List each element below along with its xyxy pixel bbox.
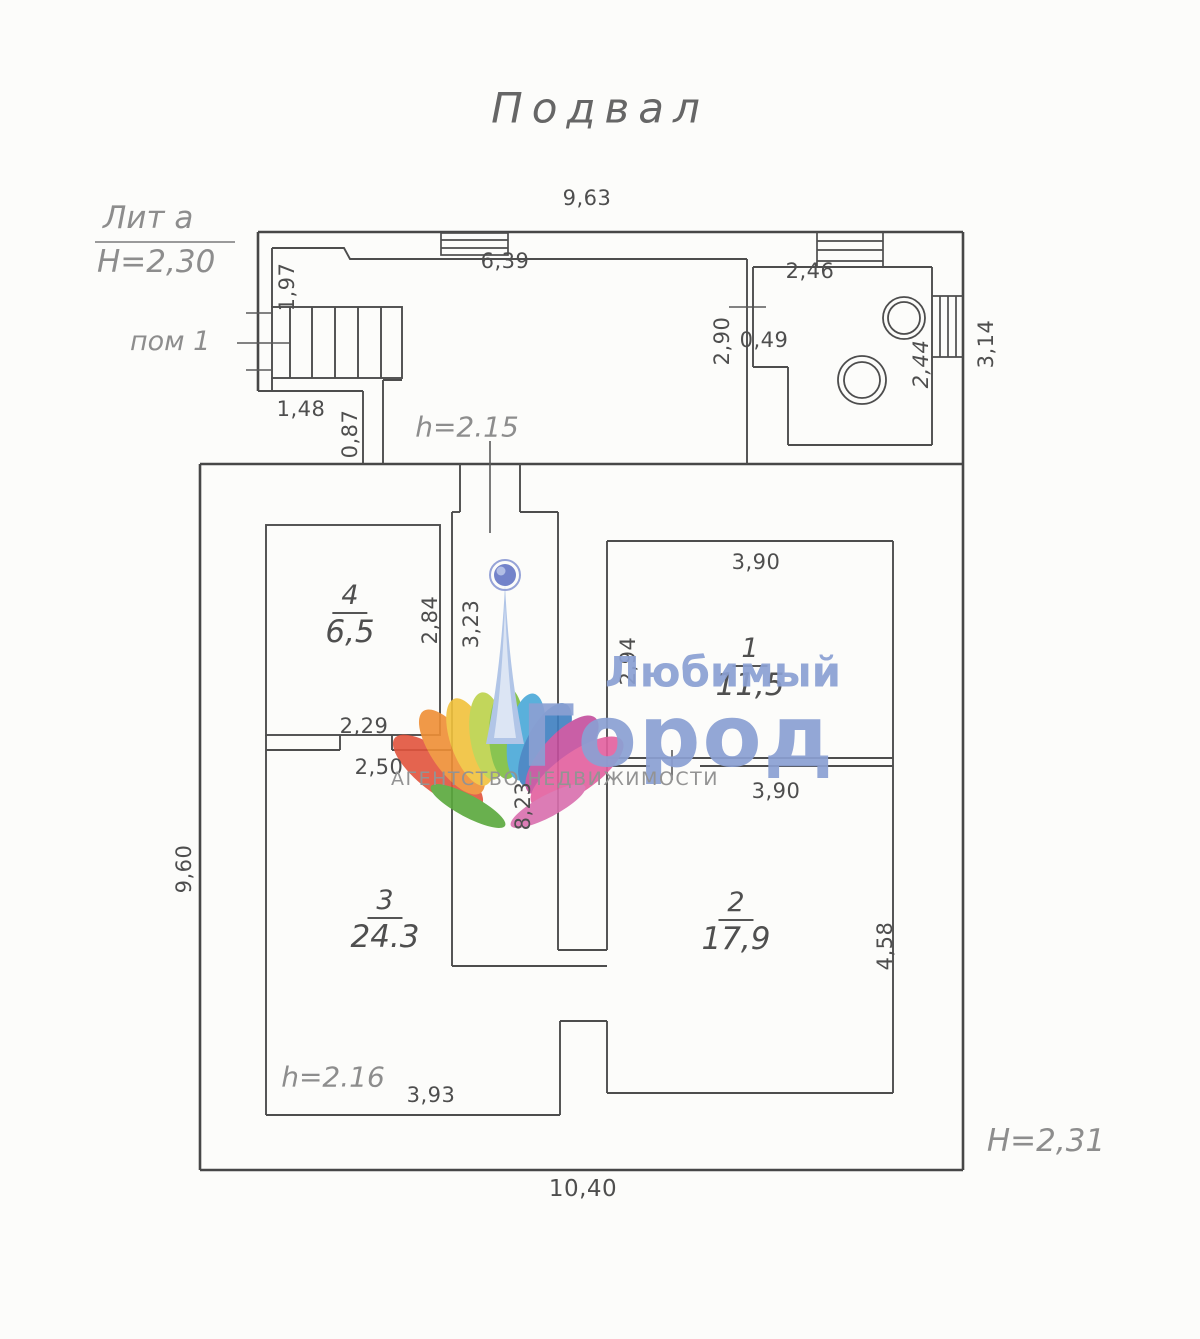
watermark-subtitle: АГЕНТСТВО НЕДВИЖИМОСТИ [391,768,719,790]
dim-stairs-side: 1,97 [275,263,299,312]
entry-door-marks [237,307,766,370]
room-ref-label: пом 1 [130,326,210,357]
room-3-label: 3 24.3 [350,885,419,955]
window-right-wall [932,296,963,357]
tank-circle-1-inner [888,302,920,334]
dim-room3-bottom: 3,93 [407,1083,456,1107]
room-4-label: 4 6,5 [325,580,374,650]
room-4-area: 6,5 [325,614,374,650]
room-2-label: 2 17,9 [701,887,770,957]
dim-room2-side: 4,58 [873,922,897,971]
floorplan-scan: Подвал Лит а Н=2,30 пом 1 9,63 6,39 1,97… [0,0,1200,1339]
dim-bottom-total: 10,40 [549,1176,617,1202]
liter-underline [95,241,235,243]
room-3-number: 3 [367,885,402,919]
room3-height-label: h=2.16 [281,1061,385,1094]
annex-height-label: Н=2,30 [97,244,215,280]
dim-corridor-upper: 3,23 [459,600,483,649]
dim-annex-inner-width: 6,39 [481,249,530,273]
dim-boiler-top: 2,46 [786,259,835,283]
dim-nook-height: 0,87 [338,410,362,459]
corridor-height-label: h=2.15 [415,411,519,444]
dim-room1-top: 3,90 [732,550,781,574]
main-height-label: Н=2,31 [987,1123,1105,1159]
tank-circle-2-inner [844,362,880,398]
room-2-area: 17,9 [701,921,770,957]
boiler-room-walls [753,267,932,445]
tank-circle-1 [883,297,925,339]
dim-boiler-step: 0,49 [740,328,789,352]
dim-left-total: 9,60 [172,845,196,894]
dim-nook-width: 1,48 [277,397,326,421]
dim-boiler-right: 2,44 [909,340,933,389]
dim-room4-door: 2,29 [340,714,389,738]
dim-annex-right-inner: 2,90 [710,317,734,366]
tank-circle-2 [838,356,886,404]
dim-top-total: 9,63 [563,186,612,210]
liter-label: Лит а [103,200,193,236]
page-title: Подвал [491,84,709,133]
room-4-number: 4 [332,580,367,614]
room-3-area: 24.3 [350,919,419,955]
stairs [272,307,402,378]
watermark-tower [486,560,524,744]
dim-right-window: 3,14 [974,320,998,369]
dim-room4-side: 2,84 [418,596,442,645]
room-2-number: 2 [718,887,753,921]
